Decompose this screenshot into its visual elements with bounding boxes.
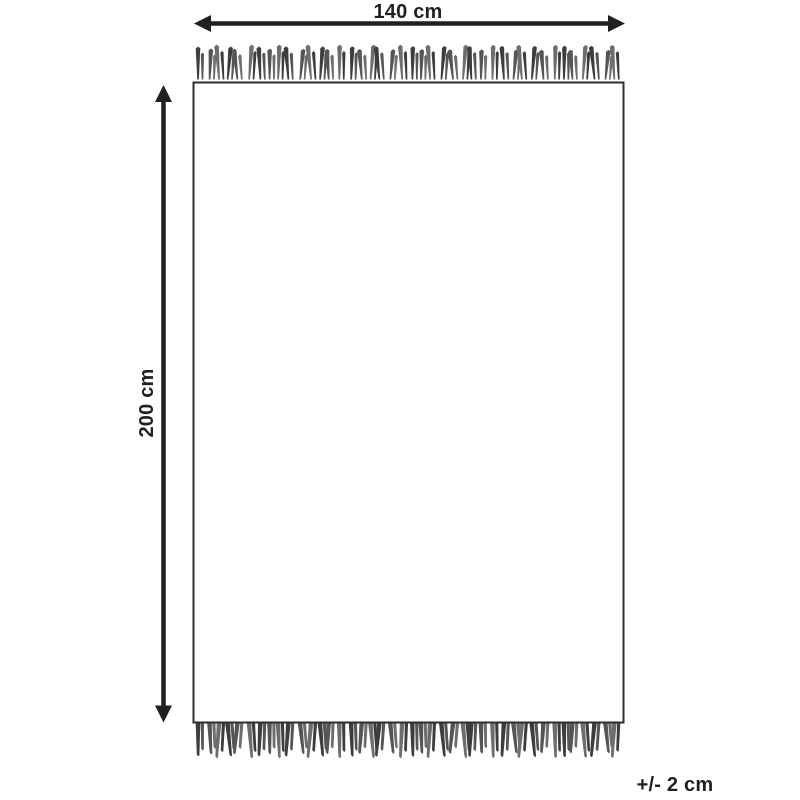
height-dimension-label: 200 cm xyxy=(135,333,159,473)
diagram-drawing xyxy=(0,0,800,800)
rug-fringe-bottom-icon xyxy=(196,724,621,759)
rug-dimension-diagram: 140 cm 200 cm +/- 2 cm xyxy=(0,0,800,800)
width-dimension-label: 140 cm xyxy=(193,0,623,24)
tolerance-label: +/- 2 cm xyxy=(615,773,735,797)
rug-fringe-top-icon xyxy=(196,45,620,80)
rug-outline xyxy=(194,83,624,723)
